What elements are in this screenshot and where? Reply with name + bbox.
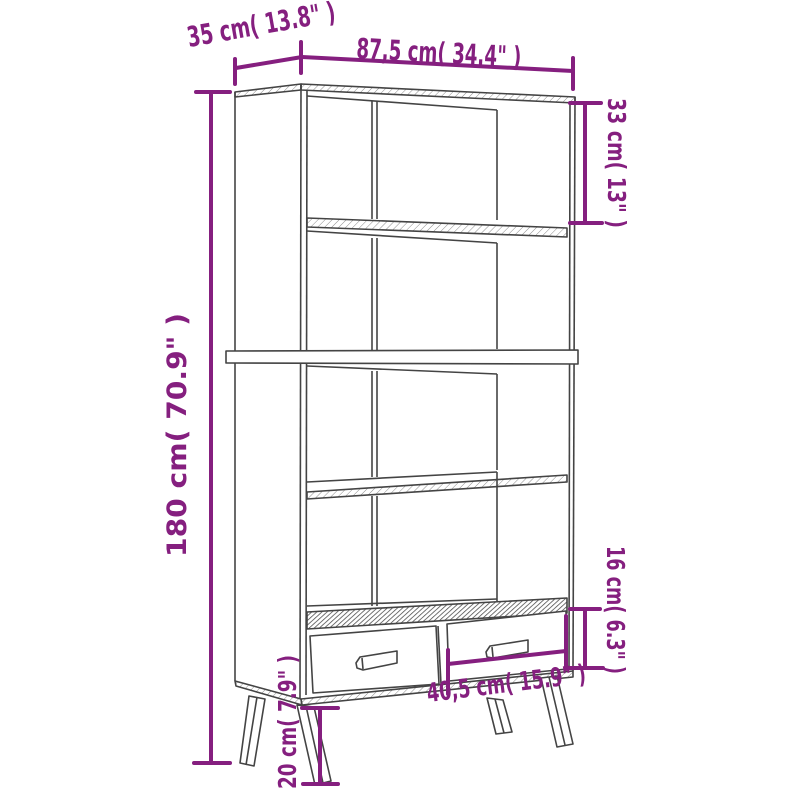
dim-leg-height-label: 20 cm( 7.9" ) — [273, 655, 302, 789]
front-left-leg — [240, 696, 265, 766]
dim-height-label: 180 cm( 70.9" ) — [162, 313, 193, 557]
dim-depth-line — [235, 42, 302, 84]
dim-drawer-height-line — [570, 609, 603, 668]
dimension-diagram: 35 cm( 13.8" ) 87,5 cm( 34.4" ) 33 cm( 1… — [0, 0, 800, 800]
cabinet-body — [226, 84, 578, 705]
top-panel-front-edge — [301, 84, 575, 103]
dim-depth-label: 35 cm( 13.8" ) — [184, 0, 337, 54]
dim-top-compartment-label: 33 cm( 13" ) — [602, 98, 631, 228]
dim-width-label: 87,5 cm( 34.4" ) — [356, 32, 523, 74]
shelf-2 — [307, 475, 567, 499]
dim-height-line — [194, 92, 230, 763]
bookcase-drawing: 35 cm( 13.8" ) 87,5 cm( 34.4" ) 33 cm( 1… — [0, 0, 800, 800]
side-panel-top-edge — [235, 84, 301, 97]
middle-band — [226, 350, 578, 364]
dim-drawer-height-label: 16 cm( 6.3" ) — [601, 546, 630, 674]
